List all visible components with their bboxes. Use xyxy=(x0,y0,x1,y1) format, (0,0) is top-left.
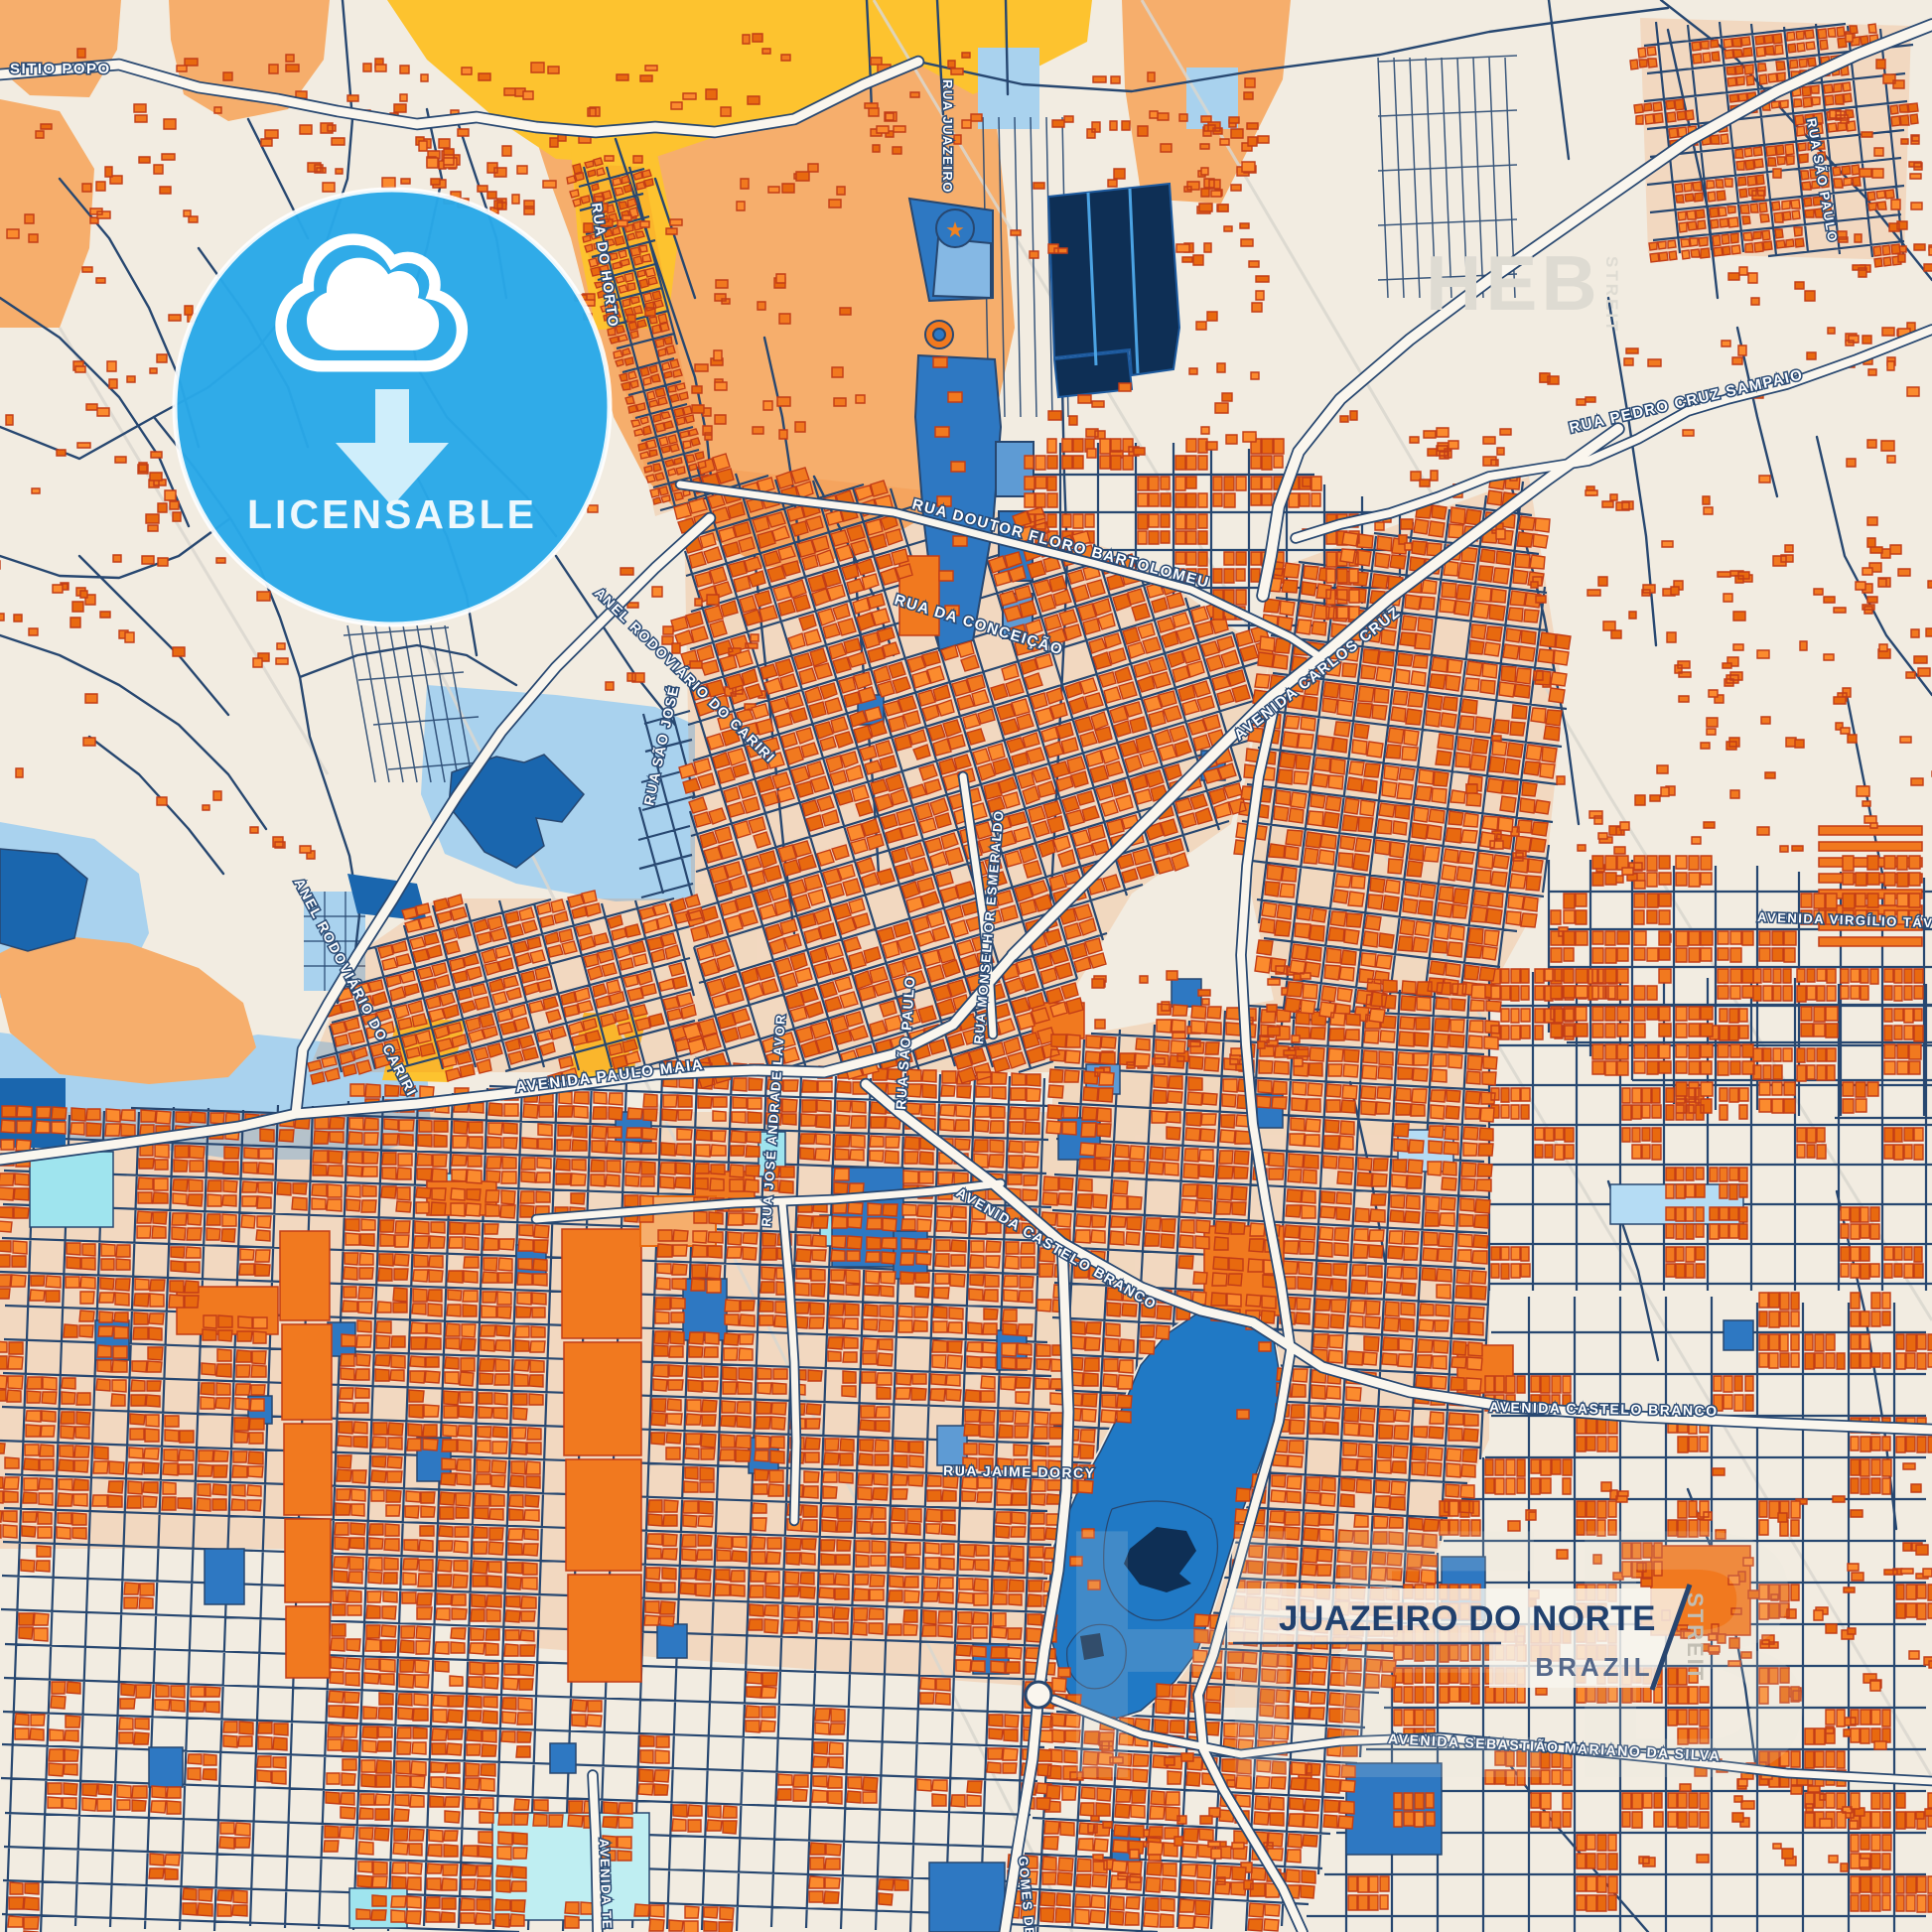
svg-text:STREIT: STREIT xyxy=(1683,1592,1708,1682)
svg-text:HEB: HEB xyxy=(1052,1454,1825,1854)
svg-text:SITIO POPO: SITIO POPO xyxy=(10,61,111,77)
svg-text:STREIT: STREIT xyxy=(1602,256,1621,334)
svg-text:RUA JUAZEIRO: RUA JUAZEIRO xyxy=(940,79,955,194)
svg-text:HEB: HEB xyxy=(1426,239,1601,327)
svg-text:LICENSABLE: LICENSABLE xyxy=(247,491,537,537)
svg-text:JUAZEIRO DO NORTE: JUAZEIRO DO NORTE xyxy=(1279,1599,1656,1638)
svg-text:★: ★ xyxy=(945,217,965,242)
svg-text:BRAZIL: BRAZIL xyxy=(1535,1652,1653,1682)
